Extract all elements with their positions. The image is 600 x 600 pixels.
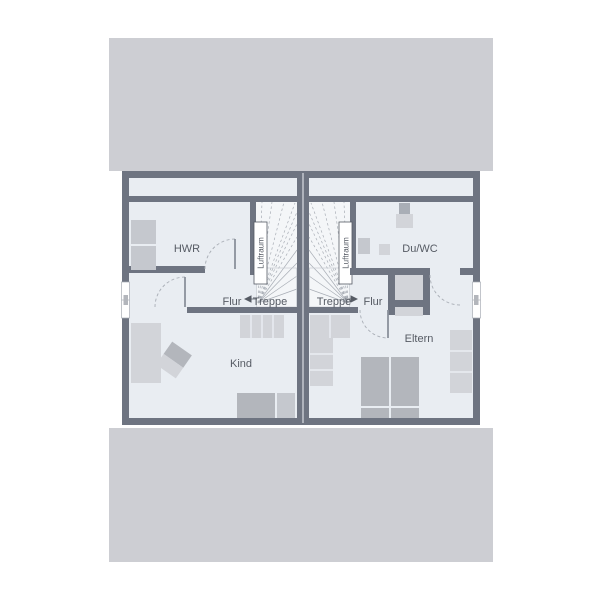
window-right xyxy=(473,282,481,318)
kind-label: Kind xyxy=(230,358,252,370)
duwc-fixture xyxy=(396,214,413,228)
kind-bed xyxy=(237,393,275,418)
treppe-label-right: Treppe xyxy=(317,296,351,308)
window-left xyxy=(122,282,130,318)
bath-partition-left xyxy=(388,268,395,315)
kind-wardrobe xyxy=(131,323,161,383)
luftraum-label-left: Luftraum xyxy=(257,237,266,269)
hwr-appliance-top xyxy=(131,220,156,244)
treppe-label-left: Treppe xyxy=(253,296,287,308)
roof-overhang-bottom xyxy=(109,428,493,562)
floor-plan: Luftraum xyxy=(122,171,481,425)
flur-label-left: Flur xyxy=(223,296,242,308)
duwc-washbasin xyxy=(358,238,370,254)
duwc-wc-fixture xyxy=(379,244,390,255)
kind-shelf xyxy=(240,315,284,338)
kind-bed-side xyxy=(277,393,295,418)
hwr-appliance-bottom xyxy=(131,246,156,270)
luftraum-label-right: Luftraum xyxy=(342,237,351,269)
floor-plan-image: Luftraum xyxy=(0,0,600,600)
bath-partition-right xyxy=(423,268,430,315)
flur-label-right: Flur xyxy=(364,296,383,308)
eltern-bed-foot-right xyxy=(391,408,419,418)
bath-partition-crossbar xyxy=(388,300,430,307)
eltern-wardrobe xyxy=(450,330,472,393)
shower-tray xyxy=(395,275,423,300)
duwc-wall-fixture xyxy=(399,203,410,214)
eltern-bed-foot-left xyxy=(361,408,389,418)
hwr-label: HWR xyxy=(174,243,200,255)
duwc-wall-stub xyxy=(460,268,473,275)
knee-wall-right xyxy=(309,196,473,202)
wc-block xyxy=(395,307,423,316)
duwc-label: Du/WC xyxy=(402,243,438,255)
knee-wall-left xyxy=(129,196,297,202)
eltern-shelf xyxy=(310,315,350,338)
roof-overhang-top xyxy=(109,38,493,171)
eltern-bed-left xyxy=(361,357,389,406)
eltern-label: Eltern xyxy=(405,333,434,345)
eltern-dresser xyxy=(310,338,333,386)
eltern-bed-right xyxy=(391,357,419,406)
